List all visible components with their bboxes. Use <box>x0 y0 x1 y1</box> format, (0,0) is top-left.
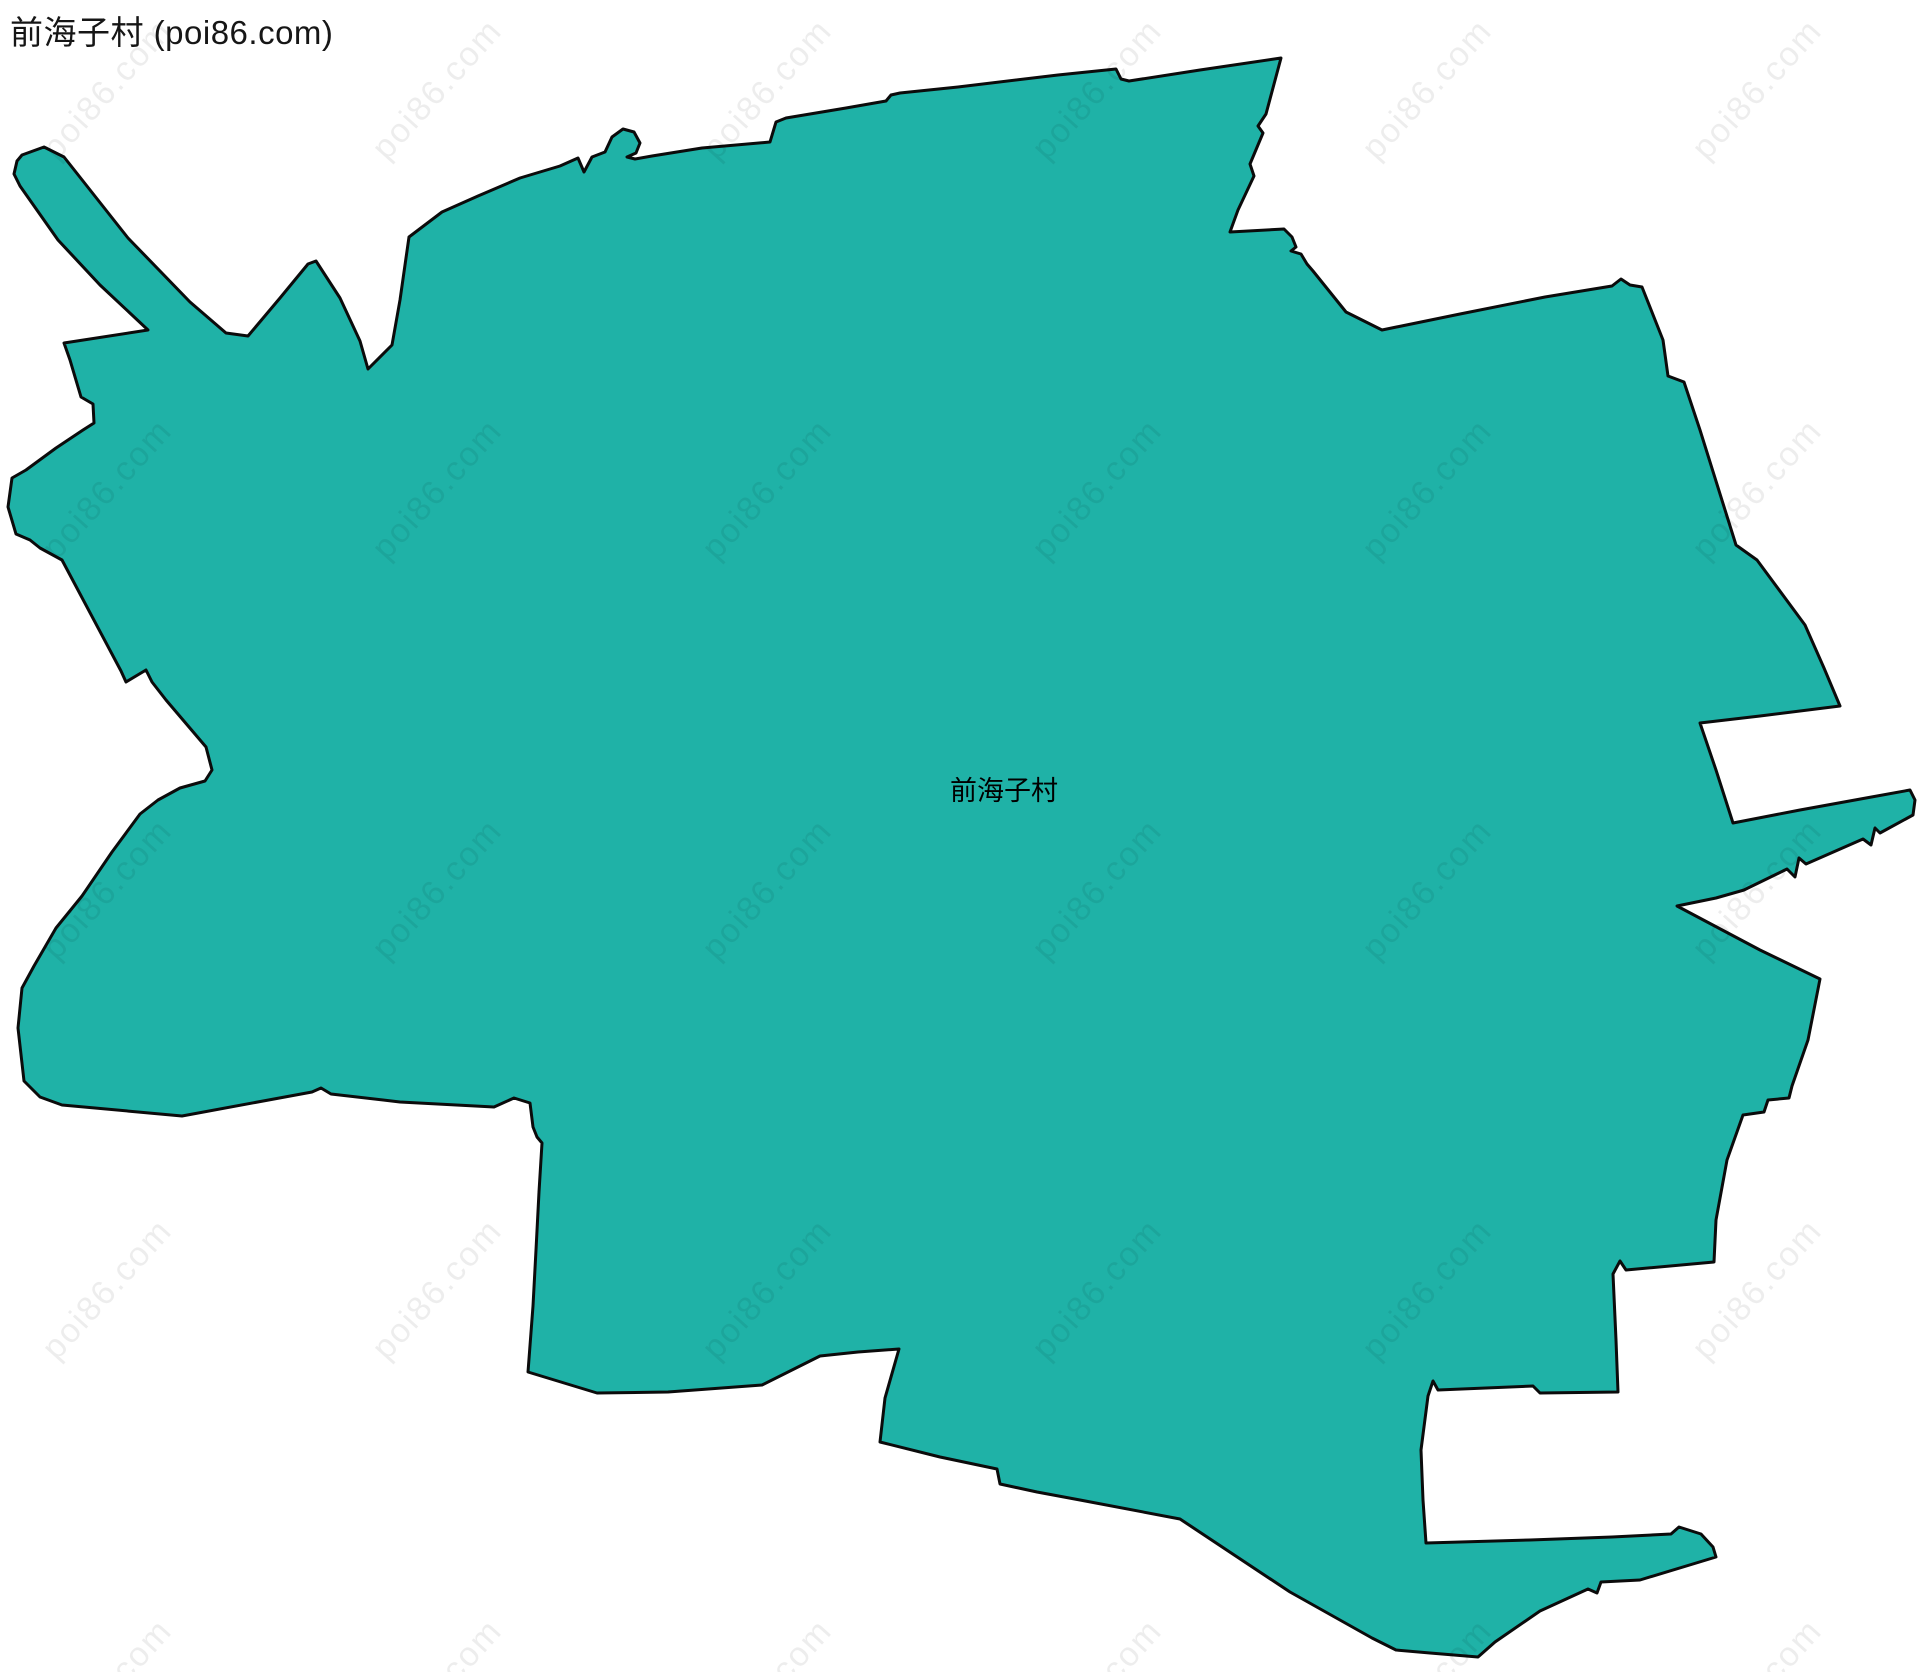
village-boundary-polygon <box>8 58 1915 1657</box>
village-boundary-map: 前海子村 <box>0 0 1920 1672</box>
page-title: 前海子村 (poi86.com) <box>10 6 333 54</box>
village-label: 前海子村 <box>950 776 1058 806</box>
map-canvas: 前海子村 poi86.compoi86.compoi86.compoi86.co… <box>0 0 1920 1672</box>
